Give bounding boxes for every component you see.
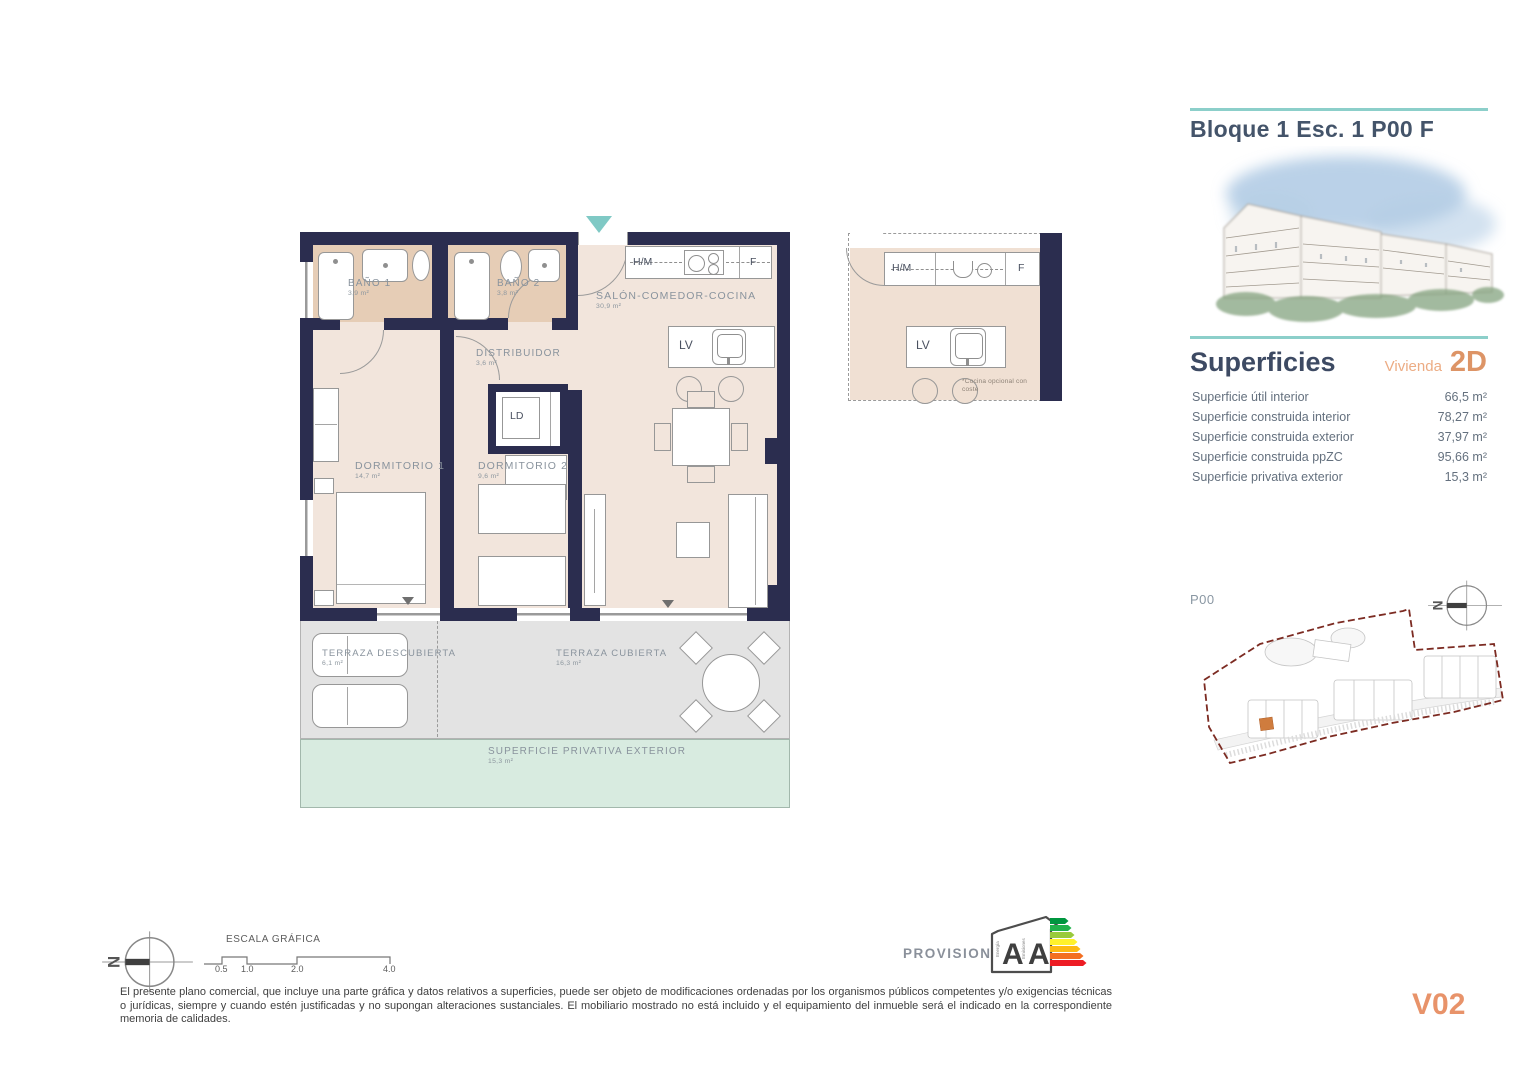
svg-text:Emisiones: Emisiones xyxy=(1021,937,1026,959)
toilet xyxy=(412,250,430,281)
wall xyxy=(568,390,582,608)
wall xyxy=(1040,233,1062,401)
fridge-label: F xyxy=(750,256,756,268)
stool xyxy=(912,378,938,404)
wall xyxy=(488,384,496,454)
sofa xyxy=(728,494,768,608)
room-label-distribuidor: DISTRIBUIDOR3,6 m² xyxy=(476,348,561,367)
window xyxy=(300,500,313,556)
window xyxy=(600,608,747,621)
desk xyxy=(478,556,566,606)
closet-shelf xyxy=(550,392,551,446)
wall-pillar xyxy=(765,438,777,464)
version-label: V02 xyxy=(1412,988,1465,1022)
bed xyxy=(478,484,566,534)
detail-door-opening xyxy=(850,233,882,248)
row-label: Superficie construida ppZC xyxy=(1192,450,1343,464)
unit-code: 2D xyxy=(1450,346,1487,378)
scale-tick: 1.0 xyxy=(241,964,254,974)
highlighted-unit xyxy=(1259,717,1274,731)
chair xyxy=(654,423,671,451)
terrace-divider xyxy=(437,621,438,737)
superficies-heading: Superficies xyxy=(1190,347,1336,378)
laundry-label: LD xyxy=(510,410,523,422)
legal-disclaimer: El presente plano comercial, que incluye… xyxy=(120,986,1112,1027)
room-label-privativa-exterior: SUPERFICIE PRIVATIVA EXTERIOR15,3 m² xyxy=(488,746,686,765)
scale-tick: 4.0 xyxy=(383,964,396,974)
wall xyxy=(552,318,578,330)
window xyxy=(517,608,570,621)
row-label: Superficie privativa exterior xyxy=(1192,470,1343,484)
scale-bar-title: ESCALA GRÁFICA xyxy=(226,934,321,945)
entrance-marker-icon xyxy=(586,216,612,233)
sun-lounger xyxy=(312,684,408,728)
row-label: Superficie construida exterior xyxy=(1192,430,1354,444)
tv-cabinet xyxy=(584,494,606,606)
room-label-bano2: BAÑO 23,8 m² xyxy=(497,278,540,297)
entry-opening xyxy=(578,232,628,245)
row-value: 78,27 m² xyxy=(1438,410,1487,424)
fridge-label: F xyxy=(1018,262,1024,274)
wall xyxy=(560,384,568,454)
counter-dash xyxy=(726,262,770,263)
energy-certificate-icon: Energía A Emisiones A xyxy=(988,912,1088,976)
bed xyxy=(336,492,426,604)
plan-sheet: LD H/M F xyxy=(0,0,1528,1080)
dining-table xyxy=(672,408,730,466)
building-watercolor-image xyxy=(1206,146,1506,336)
island-sink xyxy=(712,329,746,365)
row-value: 37,97 m² xyxy=(1438,430,1487,444)
wall xyxy=(300,608,377,621)
window-marker-icon xyxy=(662,600,674,608)
table-row: Superficie privativa exterior15,3 m² xyxy=(1192,470,1487,484)
cooktop xyxy=(684,250,724,275)
wall xyxy=(570,608,600,621)
dishwasher-label: LV xyxy=(916,338,930,352)
svg-text:Energía: Energía xyxy=(995,941,1000,957)
nightstand xyxy=(314,478,334,494)
detail-island-sink xyxy=(950,328,986,366)
bathtub xyxy=(454,252,490,320)
row-label: Superficie útil interior xyxy=(1192,390,1309,404)
scale-tick: 2.0 xyxy=(291,964,304,974)
window-marker-icon xyxy=(402,597,414,605)
wall xyxy=(747,608,790,621)
row-value: 15,3 m² xyxy=(1445,470,1487,484)
room-label-bano1: BAÑO 13,9 m² xyxy=(348,278,391,297)
dishwasher-label: LV xyxy=(679,338,693,352)
divider xyxy=(1190,336,1488,339)
room-label-terraza-descubierta: TERRAZA DESCUBIERTA6,1 m² xyxy=(322,648,456,667)
room-label-dormitorio1: DORMITORIO 114,7 m² xyxy=(355,460,445,480)
kitchen-detail-note: *Cocina opcional con coste xyxy=(962,378,1036,394)
chair xyxy=(687,466,715,483)
table-row: Superficie construida interior78,27 m² xyxy=(1192,410,1487,424)
superficies-header: Superficies Vivienda2D xyxy=(1190,346,1487,379)
window xyxy=(377,608,440,621)
wardrobe xyxy=(313,388,339,462)
stool xyxy=(718,376,744,402)
scale-tick: 0.5 xyxy=(215,964,228,974)
room-label-salon: SALÓN-COMEDOR-COCINA30,9 m² xyxy=(596,290,756,310)
row-value: 66,5 m² xyxy=(1445,390,1487,404)
site-plan xyxy=(1196,600,1516,772)
svg-text:N: N xyxy=(104,956,123,968)
row-value: 95,66 m² xyxy=(1438,450,1487,464)
wall xyxy=(628,232,790,245)
superficies-table: Superficie útil interior66,5 m² Superfic… xyxy=(1192,390,1487,484)
wall xyxy=(384,318,508,330)
table-row: Superficie útil interior66,5 m² xyxy=(1192,390,1487,404)
wall xyxy=(488,384,568,392)
table-row: Superficie construida exterior37,97 m² xyxy=(1192,430,1487,444)
svg-text:A: A xyxy=(1028,938,1050,971)
unit-type-label: Vivienda xyxy=(1385,358,1442,375)
chair xyxy=(687,391,715,408)
wall xyxy=(440,608,517,621)
table-row: Superficie construida ppZC95,66 m² xyxy=(1192,450,1487,464)
wall xyxy=(488,446,568,454)
wall xyxy=(777,232,790,620)
divider xyxy=(1190,108,1488,111)
page-title: Bloque 1 Esc. 1 P00 F xyxy=(1190,116,1434,143)
hm-label: H/M xyxy=(633,256,652,268)
chair xyxy=(731,423,748,451)
room-label-terraza-cubierta: TERRAZA CUBIERTA16,3 m² xyxy=(556,648,667,667)
nightstand xyxy=(314,590,334,606)
room-label-dormitorio2: DORMITORIO 29,6 m² xyxy=(478,460,568,480)
row-label: Superficie construida interior xyxy=(1192,410,1350,424)
terrace-table xyxy=(702,654,760,712)
window xyxy=(300,262,313,318)
coffee-table xyxy=(676,522,710,558)
hm-label: H/M xyxy=(892,262,911,274)
